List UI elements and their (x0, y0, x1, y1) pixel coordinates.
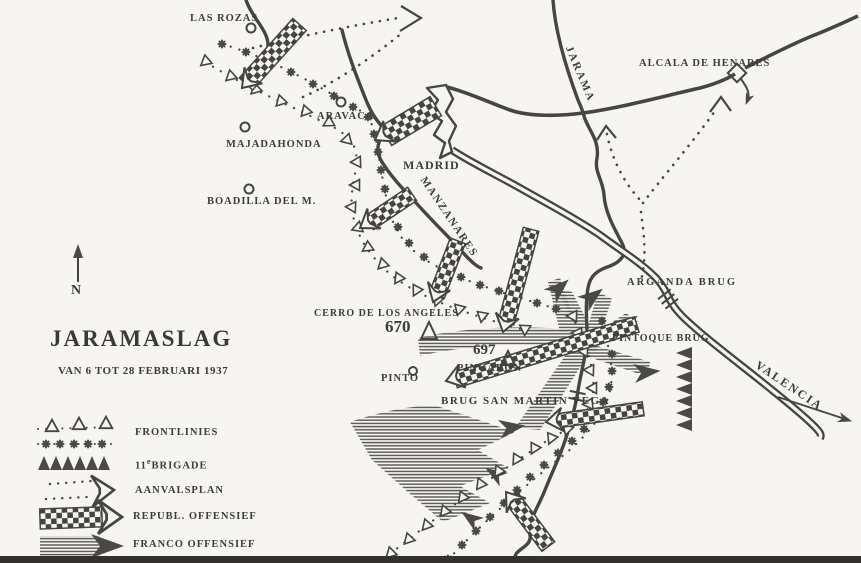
north-arrow (73, 244, 83, 282)
jarama-battle-map: LAS ROZAS ARAVACA MAJADAHONDA BOADILLA D… (0, 0, 861, 563)
map-subtitle: VAN 6 TOT 28 FEBRUARI 1937 (58, 365, 228, 377)
place-label-boadilla: BOADILLA DEL M. (207, 196, 316, 207)
place-label-las-rozas: LAS ROZAS (190, 13, 258, 24)
legend-label-brigade: 11eBRIGADE (135, 457, 208, 472)
legend-symbols (38, 417, 124, 558)
bridge-label-arganda: ARGANDA BRUG (627, 277, 737, 288)
place-label-aravaca: ARAVACA (317, 111, 374, 122)
legend-frontline-symbol (38, 417, 116, 448)
hill-label-pingaron: PINGARON (457, 363, 522, 374)
legend-label-attack-plan: AANVALSPLAN (135, 485, 224, 496)
town-marker-boadilla (245, 185, 254, 194)
legend-brigade-symbol (38, 456, 110, 470)
legend-republican-symbol (40, 500, 122, 534)
legend-label-republican: REPUBL. OFFENSIEF (133, 511, 257, 522)
bridge-label-san-martin: BRUG SAN MARTIN VEGA (441, 395, 610, 407)
legend-attack-plan-symbol (46, 474, 115, 506)
bridge-label-pintoque: PINTOQUE BRUG (612, 333, 710, 344)
north-arrow-icon (73, 244, 83, 258)
place-label-madrid: MADRID (403, 158, 460, 173)
map-bottom-border (0, 556, 861, 563)
hill-elevation-670: 670 (385, 317, 411, 337)
compass-label: N (71, 283, 82, 299)
town-marker-majadahonda (241, 123, 250, 132)
place-label-alcala: ALCALA DE HENARES (639, 58, 770, 69)
map-title: JARAMASLAG (50, 326, 232, 352)
place-label-majadahonda: MAJADAHONDA (226, 139, 322, 150)
legend-brigade-word: BRIGADE (151, 461, 207, 472)
legend-label-frontline: FRONTLINIES (135, 427, 218, 438)
roads (447, 16, 858, 438)
brigade-11-position (676, 347, 692, 431)
town-marker-las-rozas (247, 24, 256, 33)
attack-plan-arrow-icon (710, 97, 731, 112)
town-marker-aravaca (337, 98, 346, 107)
attack-plan-arrowheads (400, 6, 731, 140)
attack-plan-arrow-icon (400, 6, 421, 31)
hill-elevation-697: 697 (473, 342, 496, 359)
place-label-pinto: PINTO (381, 373, 419, 384)
legend-brigade-number: 11 (135, 461, 147, 472)
legend-label-franco: FRANCO OFFENSIEF (133, 539, 255, 550)
legend-franco-symbol (40, 534, 124, 558)
valencia-direction-arrow-icon (837, 412, 854, 426)
town-markers (241, 24, 747, 376)
